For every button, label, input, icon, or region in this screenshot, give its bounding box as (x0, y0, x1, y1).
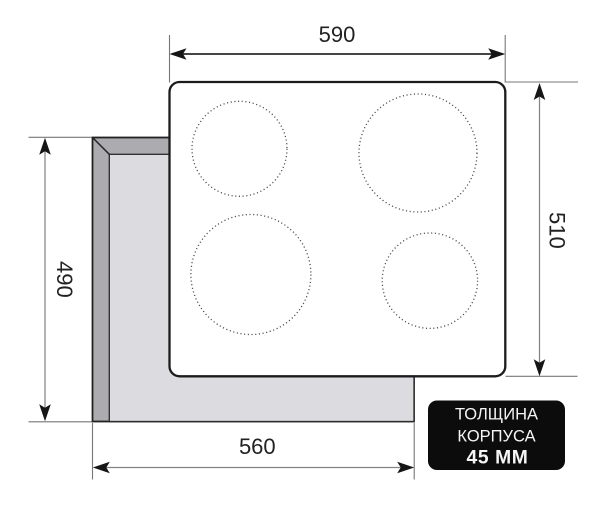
svg-text:45 ММ: 45 ММ (467, 447, 529, 468)
svg-text:КОРПУСА: КОРПУСА (457, 427, 535, 445)
svg-text:560: 560 (239, 434, 276, 459)
svg-text:590: 590 (319, 22, 356, 47)
svg-text:ТОЛЩИНА: ТОЛЩИНА (455, 406, 538, 424)
svg-text:510: 510 (545, 212, 570, 249)
svg-text:490: 490 (52, 261, 77, 298)
